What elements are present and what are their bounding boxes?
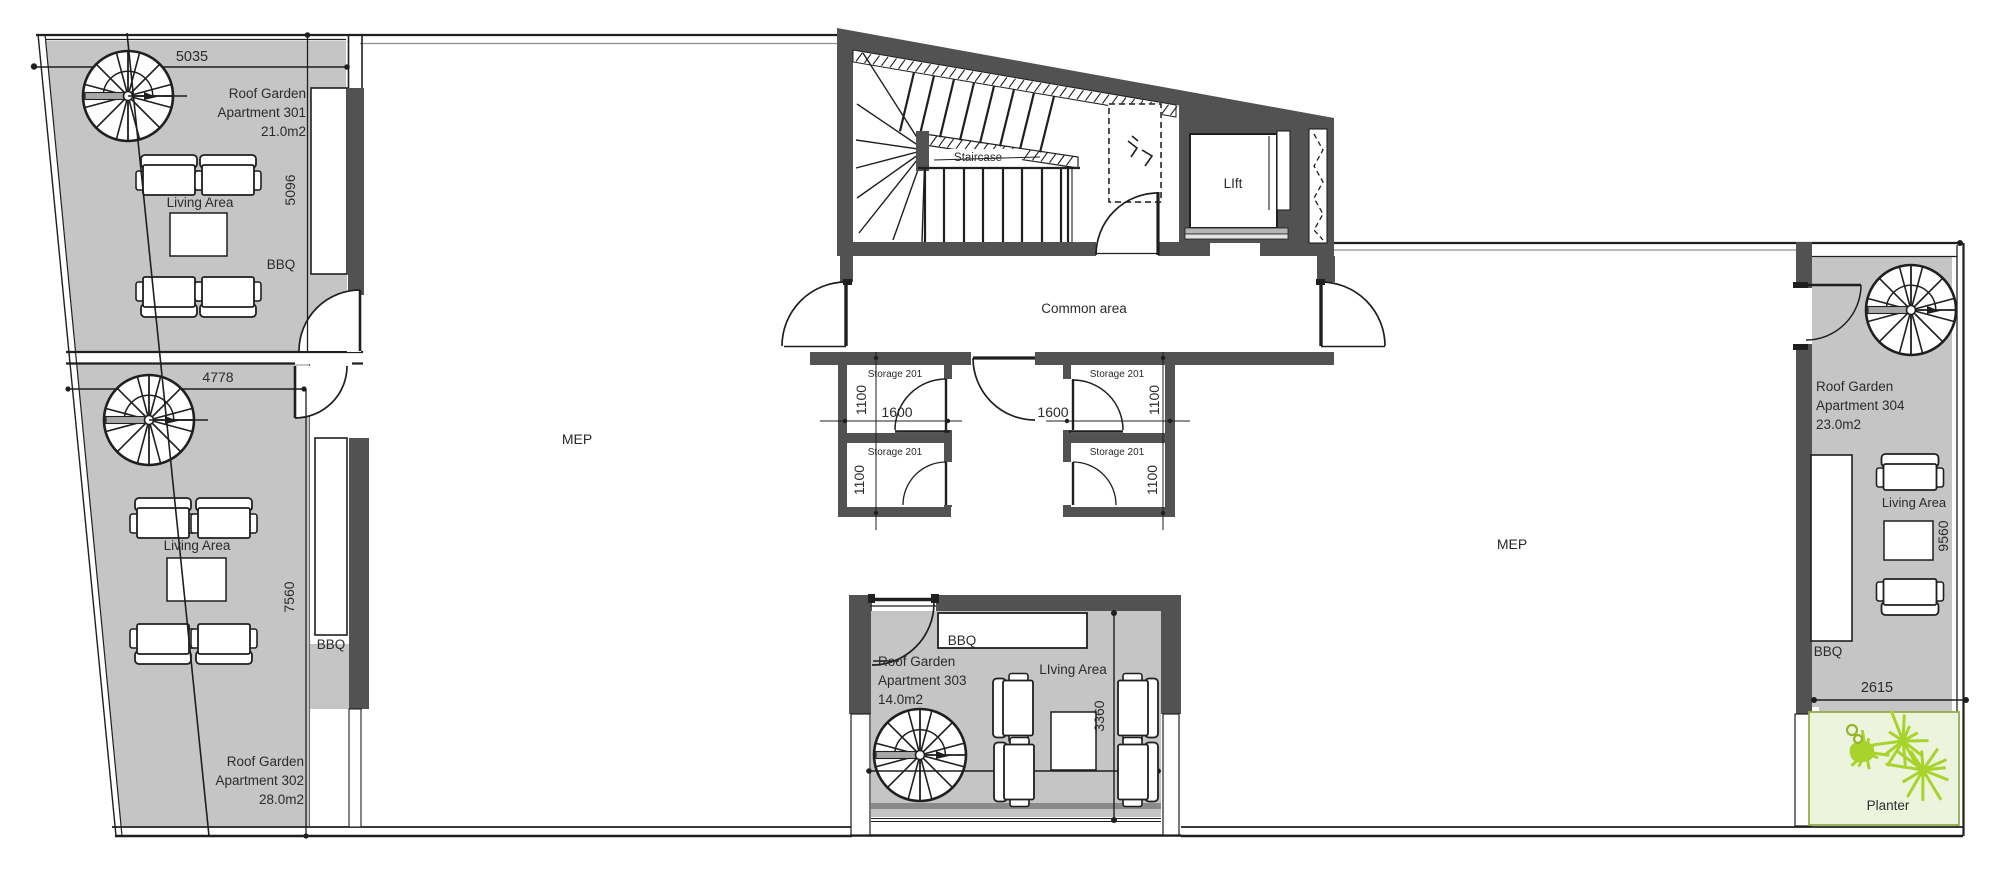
svg-text:14.0m2: 14.0m2 [878,692,923,707]
svg-text:LIft: LIft [1224,176,1243,191]
svg-text:Roof Garden: Roof Garden [1816,379,1893,394]
svg-text:Living Area: Living Area [1882,495,1947,510]
svg-text:Apartment 301: Apartment 301 [217,105,306,120]
svg-text:5035: 5035 [176,49,208,65]
svg-text:Storage 201: Storage 201 [1090,447,1145,458]
svg-text:4778: 4778 [202,369,233,385]
svg-text:23.0m2: 23.0m2 [1816,417,1861,432]
svg-text:BBQ: BBQ [267,257,296,272]
svg-text:7560: 7560 [281,581,297,612]
svg-text:1100: 1100 [853,385,869,415]
svg-text:1600: 1600 [881,404,912,420]
svg-text:28.0m2: 28.0m2 [259,792,304,807]
svg-text:Apartment 303: Apartment 303 [878,673,967,688]
svg-text:Storage 201: Storage 201 [1090,369,1145,380]
svg-text:1100: 1100 [1144,465,1160,495]
svg-text:Apartment 304: Apartment 304 [1816,398,1905,413]
svg-text:Living Area: Living Area [164,538,231,553]
svg-text:Roof Garden: Roof Garden [229,86,306,101]
svg-text:BBQ: BBQ [1814,644,1843,659]
svg-text:Apartment 302: Apartment 302 [215,773,304,788]
svg-text:3360: 3360 [1091,700,1107,731]
svg-text:MEP: MEP [562,431,592,447]
svg-text:LIving Area: LIving Area [1039,662,1107,677]
svg-text:BBQ: BBQ [948,633,977,648]
svg-text:1600: 1600 [1037,404,1068,420]
svg-text:9560: 9560 [1935,520,1951,551]
svg-text:BBQ: BBQ [317,637,346,652]
svg-text:Planter: Planter [1867,798,1910,813]
svg-text:Common area: Common area [1041,301,1127,316]
svg-text:Roof Garden: Roof Garden [227,754,304,769]
svg-text:2615: 2615 [1861,680,1893,696]
svg-text:1100: 1100 [1146,385,1162,415]
svg-text:1100: 1100 [851,465,867,495]
svg-text:5096: 5096 [282,174,298,205]
svg-text:21.0m2: 21.0m2 [261,124,306,139]
svg-text:Roof Garden: Roof Garden [878,654,955,669]
svg-text:MEP: MEP [1497,536,1527,552]
svg-text:Living Area: Living Area [167,195,234,210]
